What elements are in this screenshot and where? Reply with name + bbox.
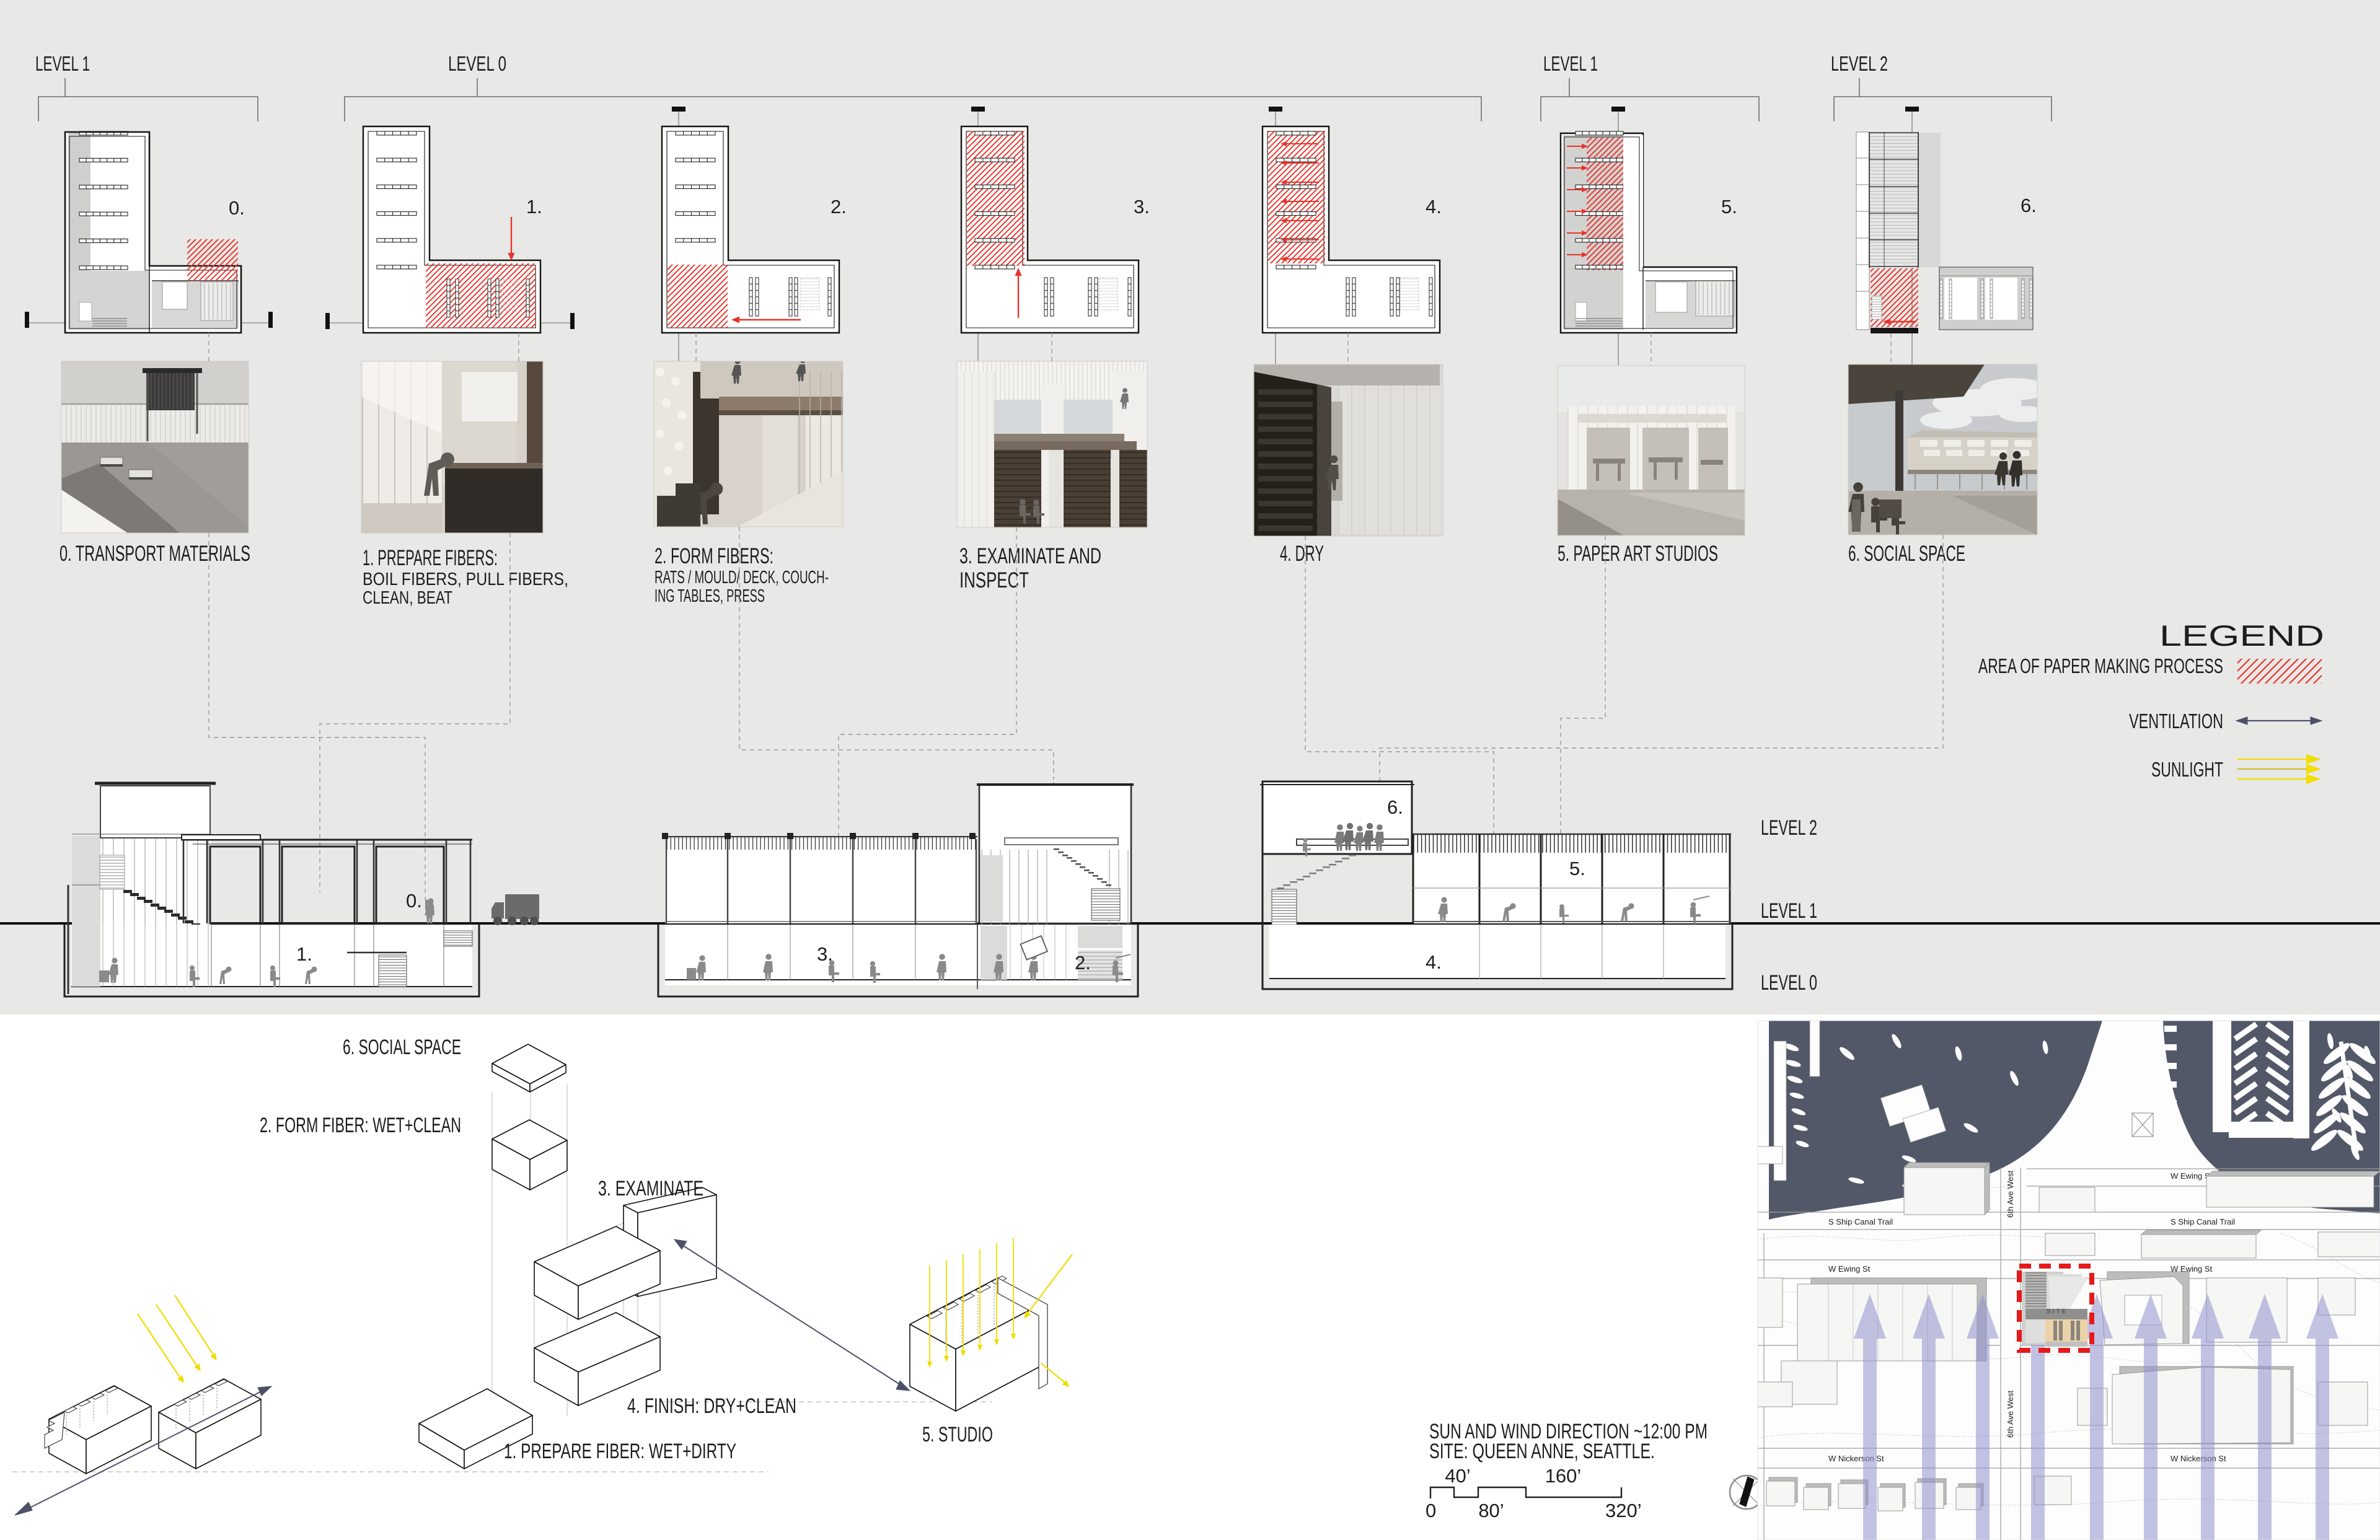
svg-text:0.: 0. (229, 197, 245, 219)
svg-text:BOIL FIBERS, PULL FIBERS,: BOIL FIBERS, PULL FIBERS, (363, 570, 568, 589)
svg-text:320’: 320’ (1605, 1500, 1642, 1521)
svg-text:5. STUDIO: 5. STUDIO (922, 1423, 993, 1446)
svg-text:LEVEL 1: LEVEL 1 (1543, 52, 1598, 75)
svg-text:S Ship Canal Trail: S Ship Canal Trail (2171, 1217, 2235, 1226)
svg-text:ING TABLES, PRESS: ING TABLES, PRESS (654, 586, 765, 606)
svg-text:LEVEL 0: LEVEL 0 (448, 52, 506, 75)
svg-text:5. PAPER ART STUDIOS: 5. PAPER ART STUDIOS (1558, 542, 1718, 566)
svg-text:3. EXAMINATE AND: 3. EXAMINATE AND (959, 544, 1101, 568)
svg-text:40’: 40’ (1445, 1465, 1470, 1487)
svg-text:S Ship Canal Trail: S Ship Canal Trail (1828, 1217, 1893, 1226)
svg-text:6. SOCIAL SPACE: 6. SOCIAL SPACE (1848, 542, 1965, 566)
svg-text:RATS / MOULD/ DECK, COUCH-: RATS / MOULD/ DECK, COUCH- (654, 568, 829, 587)
svg-text:3.: 3. (1134, 196, 1150, 218)
svg-text:W Nickerson St: W Nickerson St (2171, 1454, 2226, 1463)
svg-text:LEVEL 1: LEVEL 1 (35, 52, 90, 75)
svg-text:5.: 5. (1569, 858, 1585, 879)
svg-text:6th Ave West: 6th Ave West (2006, 1170, 2015, 1218)
svg-text:6.: 6. (2021, 195, 2037, 216)
svg-text:2.: 2. (1075, 952, 1091, 974)
svg-text:6.: 6. (1387, 796, 1403, 818)
svg-text:1. PREPARE FIBER: WET+DIRTY: 1. PREPARE FIBER: WET+DIRTY (504, 1440, 736, 1463)
svg-text:4.: 4. (1426, 196, 1442, 218)
svg-text:3. EXAMINATE: 3. EXAMINATE (598, 1177, 703, 1200)
svg-text:AREA OF PAPER MAKING PROCESS: AREA OF PAPER MAKING PROCESS (1978, 654, 2223, 677)
svg-text:1.: 1. (296, 943, 312, 965)
svg-text:4. FINISH: DRY+CLEAN: 4. FINISH: DRY+CLEAN (627, 1394, 796, 1418)
svg-text:2. FORM FIBERS:: 2. FORM FIBERS: (654, 544, 773, 568)
svg-text:VENTILATION: VENTILATION (2129, 710, 2223, 733)
svg-text:LEVEL 2: LEVEL 2 (1831, 52, 1888, 75)
svg-text:INSPECT: INSPECT (959, 568, 1029, 592)
svg-text:SITE: SITE (2047, 1308, 2068, 1315)
svg-text:160’: 160’ (1545, 1465, 1582, 1487)
svg-text:5.: 5. (1721, 196, 1737, 218)
svg-text:W Ewing St: W Ewing St (2171, 1171, 2213, 1181)
svg-text:2.: 2. (831, 196, 847, 218)
svg-text:0.: 0. (406, 890, 422, 912)
svg-text:6th Ave West: 6th Ave West (2006, 1390, 2015, 1438)
svg-text:1.: 1. (526, 196, 542, 218)
svg-text:80’: 80’ (1478, 1500, 1504, 1521)
svg-text:4.: 4. (1426, 951, 1442, 973)
svg-text:SITE: QUEEN ANNE, SEATTLE.: SITE: QUEEN ANNE, SEATTLE. (1429, 1440, 1655, 1463)
svg-text:W Ewing St: W Ewing St (1828, 1264, 1871, 1274)
svg-text:LEVEL 1: LEVEL 1 (1761, 899, 1817, 923)
svg-text:0. TRANSPORT MATERIALS: 0. TRANSPORT MATERIALS (59, 542, 250, 566)
svg-text:SUNLIGHT: SUNLIGHT (2151, 758, 2223, 781)
svg-text:1. PREPARE FIBERS:: 1. PREPARE FIBERS: (363, 546, 498, 570)
svg-text:LEVEL 0: LEVEL 0 (1761, 971, 1817, 995)
svg-text:CLEAN, BEAT: CLEAN, BEAT (363, 588, 452, 608)
svg-text:3.: 3. (817, 943, 833, 965)
svg-text:LEGEND: LEGEND (2159, 619, 2324, 652)
svg-text:2. FORM FIBER: WET+CLEAN: 2. FORM FIBER: WET+CLEAN (260, 1114, 461, 1137)
svg-text:0: 0 (1426, 1500, 1436, 1521)
svg-text:4. DRY: 4. DRY (1280, 542, 1324, 566)
svg-text:LEVEL 2: LEVEL 2 (1761, 816, 1817, 840)
svg-text:6. SOCIAL SPACE: 6. SOCIAL SPACE (343, 1036, 461, 1059)
